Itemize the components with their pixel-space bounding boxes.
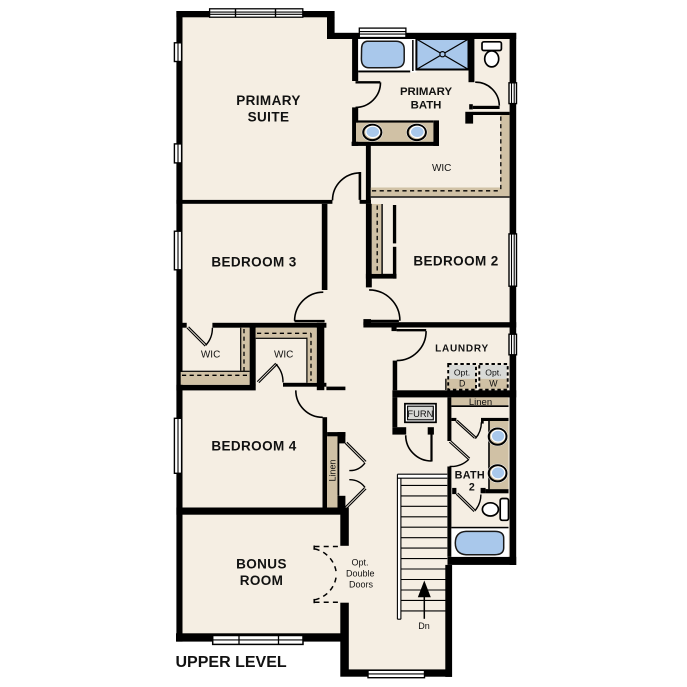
svg-text:Linen: Linen [469, 397, 492, 408]
svg-text:BATH: BATH [455, 469, 485, 481]
svg-text:BEDROOM 4: BEDROOM 4 [211, 439, 296, 454]
svg-text:W: W [489, 378, 498, 388]
svg-text:D: D [459, 378, 465, 388]
svg-text:Dn: Dn [418, 621, 430, 631]
svg-text:Opt.: Opt. [454, 367, 470, 377]
svg-text:WIC: WIC [274, 349, 293, 360]
svg-text:Opt.: Opt. [351, 558, 368, 568]
svg-text:PRIMARY: PRIMARY [400, 86, 453, 98]
svg-text:UPPER LEVEL: UPPER LEVEL [176, 654, 287, 671]
svg-text:ROOM: ROOM [240, 573, 284, 588]
svg-text:2: 2 [469, 481, 475, 493]
svg-text:FURN: FURN [407, 408, 433, 419]
svg-text:LAUNDRY: LAUNDRY [435, 344, 489, 355]
svg-text:BEDROOM 2: BEDROOM 2 [413, 254, 498, 269]
svg-text:Double: Double [346, 569, 375, 579]
svg-text:WIC: WIC [432, 163, 451, 174]
svg-text:BEDROOM 3: BEDROOM 3 [211, 255, 296, 270]
svg-text:WIC: WIC [201, 350, 220, 361]
svg-text:Linen: Linen [328, 459, 338, 481]
svg-text:BATH: BATH [411, 100, 442, 112]
svg-text:BONUS: BONUS [236, 557, 287, 572]
svg-text:Opt.: Opt. [485, 367, 501, 377]
svg-text:SUITE: SUITE [248, 110, 290, 125]
svg-text:Doors: Doors [349, 580, 374, 590]
svg-text:PRIMARY: PRIMARY [236, 93, 301, 108]
